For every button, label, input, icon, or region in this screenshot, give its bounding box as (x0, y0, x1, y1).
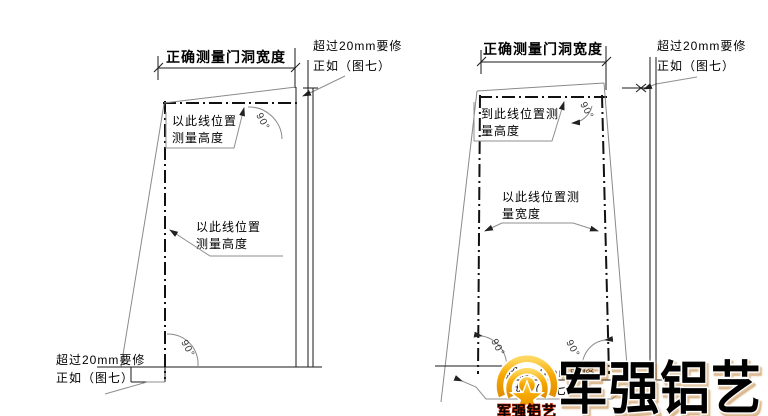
annotation-text: 以此线位置 (172, 113, 237, 128)
figure-right-top-angle: 90° (572, 100, 596, 123)
angle-label: 90° (253, 111, 271, 132)
annotation-text: 以此线位置 (196, 219, 261, 234)
annotation-text: 到此线位置测 (481, 106, 559, 121)
note-text: 正如（图七） (657, 58, 735, 73)
figure-left-title: 正确测量门洞宽度 (166, 49, 286, 65)
note-text: 正如（图七） (313, 58, 391, 73)
sun-star-logo: 军强铝艺 (497, 359, 557, 416)
figure-left-bottom-angle: 90° (167, 334, 198, 366)
note-text: 超过20mm要修 (657, 38, 746, 53)
figure-right-title: 正确测量门洞宽度 (483, 41, 603, 57)
figure-left-top-angle: 90° (248, 107, 282, 139)
diagram-canvas: 正确测量门洞宽度 超过20mm要修 正如（图七） 以此线位置 测量高度 (0, 0, 768, 416)
angle-label: 90° (178, 338, 196, 359)
annotation-text: 测量高度 (172, 130, 224, 145)
logo-caption: 军强铝艺 (497, 403, 557, 416)
annotation-text: 以此线位置测 (502, 189, 580, 204)
figure-right-upper-annotation: 到此线位置测 量高度 (474, 102, 564, 141)
figure-left-upper-annotation: 以此线位置 测量高度 (166, 108, 244, 148)
note-text: 正如（图七） (56, 370, 134, 385)
diagram-page: 正确测量门洞宽度 超过20mm要修 正如（图七） 以此线位置 测量高度 (0, 0, 768, 416)
figure-right-middle-annotation: 以此线位置测 量宽度 (485, 189, 598, 231)
figure-left-middle-annotation: 以此线位置 测量高度 (170, 219, 283, 256)
annotation-text: 量宽度 (502, 206, 541, 221)
figure-right-top-right-note: 超过20mm要修 正如（图七） (636, 38, 746, 92)
note-text: 超过20mm要修 (313, 38, 402, 53)
angle-label: 90° (488, 337, 506, 358)
figure-right: 正确测量门洞宽度 超过20mm要修 正如（图七） 到此线位置测 (435, 38, 746, 402)
watermark-brand-text: 军强铝艺 (558, 357, 762, 416)
note-text: 超过20mm要修 (56, 352, 145, 367)
figure-left: 正确测量门洞宽度 超过20mm要修 正如（图七） 以此线位置 测量高度 (56, 38, 402, 394)
annotation-text: 量高度 (481, 123, 520, 138)
figure-left-top-right-note: 超过20mm要修 正如（图七） (303, 38, 402, 96)
figure-left-bottom-note: 超过20mm要修 正如（图七） (56, 352, 165, 394)
angle-label: 90° (577, 100, 595, 121)
annotation-text: 测量高度 (196, 236, 248, 251)
